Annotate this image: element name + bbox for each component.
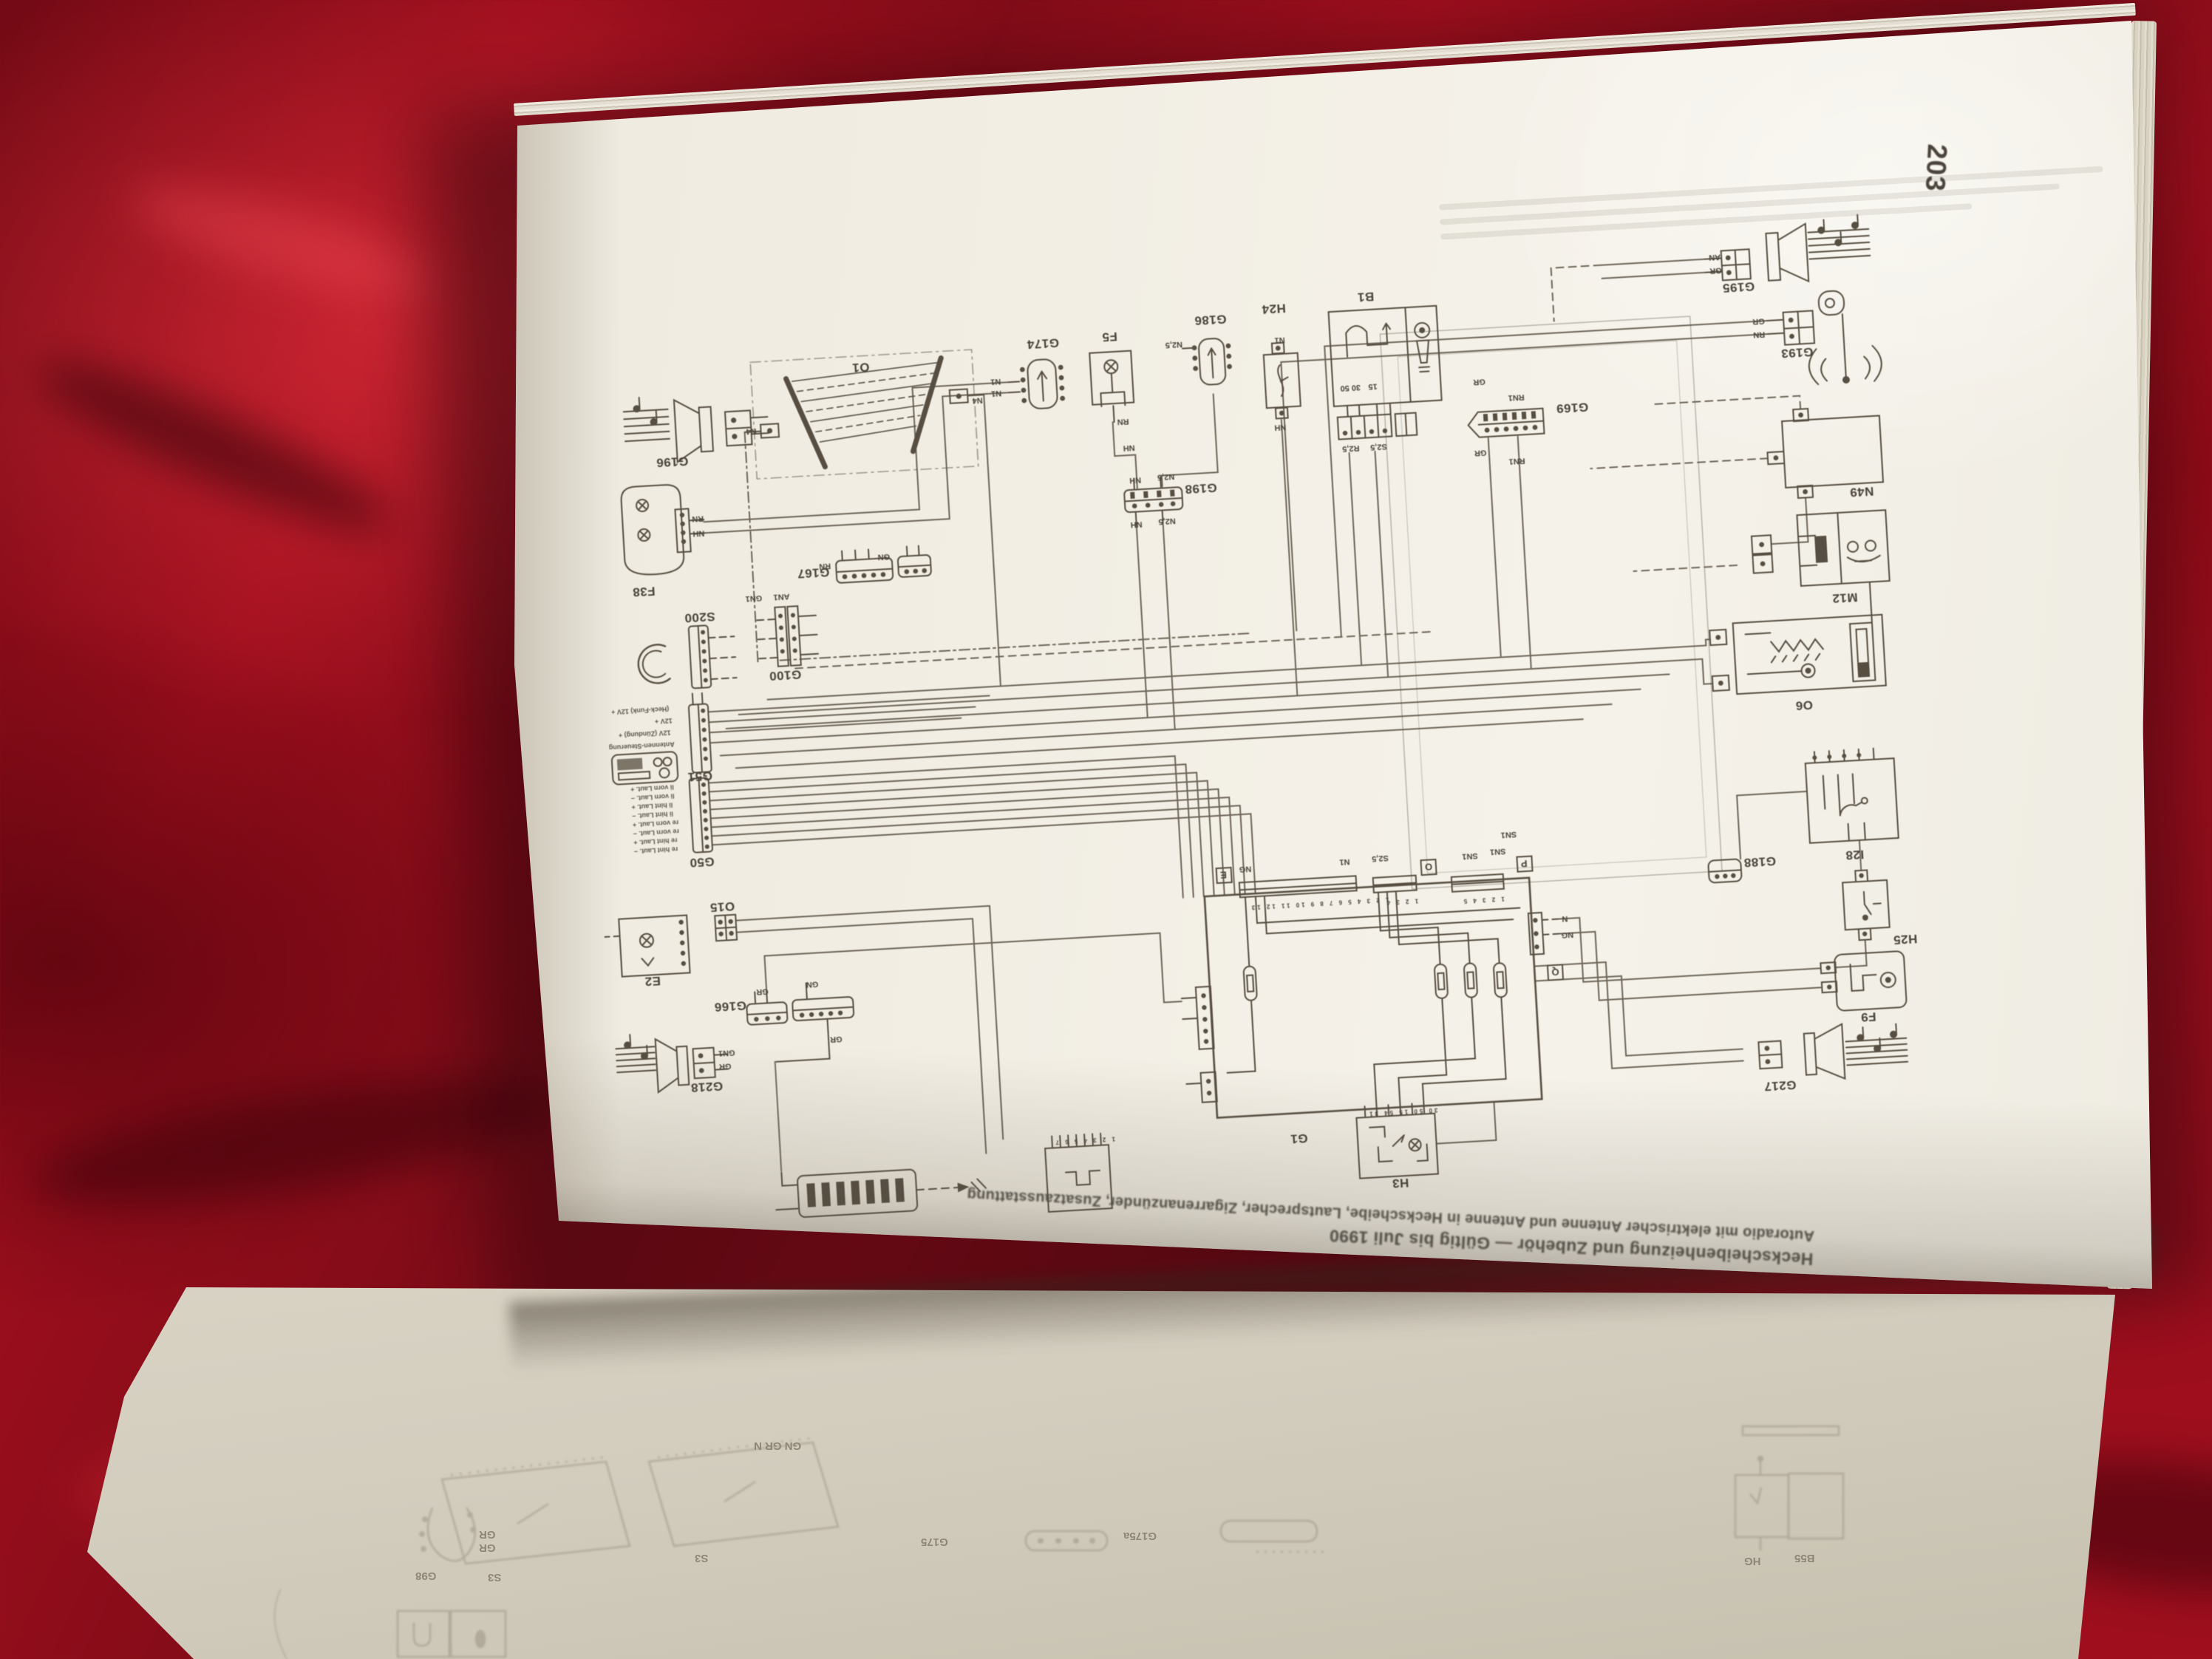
label-ng: NG: [1561, 930, 1573, 938]
label-m12: M12: [1831, 591, 1857, 605]
label-rn1: RN1: [1508, 456, 1525, 465]
label-g174: G174: [1027, 336, 1060, 350]
label-n2-5: N2,5: [1157, 472, 1175, 481]
label-nh: NH: [1129, 475, 1141, 484]
label-rn: RN: [1753, 330, 1765, 338]
label-nh: NH: [1130, 519, 1142, 528]
wiring-diagram: G195G193N49M12O6I28G188H25F9G217B1H24G16…: [487, 100, 2212, 1304]
label-gn1: GN1: [745, 593, 762, 602]
label-g217: G217: [1763, 1078, 1797, 1092]
label-e: E: [1220, 870, 1227, 879]
label-o: O: [1425, 862, 1433, 872]
label-f9: F9: [1860, 1010, 1876, 1023]
label-li-hint-laut-: li hint Laut. −: [632, 810, 673, 819]
label-gr: GR: [479, 1542, 496, 1554]
label-g1: G1: [1290, 1132, 1308, 1145]
label-n4: N4: [746, 426, 757, 435]
label-n1: N1: [1339, 857, 1350, 866]
label-sn1: SN1: [1500, 830, 1517, 839]
label-g193: G193: [1780, 345, 1814, 359]
label-s2-5: S2,5: [1370, 442, 1387, 451]
label-g98: G98: [415, 1570, 436, 1582]
label-1-2-3-4-5-6-7-8-9-10-11-12-13: 1 2 3 4 5 6 7 8 9 10 11 12 13: [1249, 896, 1389, 910]
label-1-2-3-4-5: 1 2 3 4 5: [1461, 896, 1505, 904]
label-hg: HG: [1744, 1555, 1761, 1567]
label-o1: O1: [851, 361, 870, 374]
label-12v-z-ndung-: 12V (Zündung) +: [619, 729, 671, 738]
label-g188: G188: [1743, 855, 1777, 869]
label-rn: RN: [1117, 417, 1129, 426]
label-e2: E2: [644, 975, 661, 988]
label-gr: GR: [1474, 448, 1487, 457]
label-n1: N1: [1274, 335, 1285, 344]
label-r2-5: R2,5: [1342, 443, 1360, 452]
label-gn-gr-n: GN GR N: [754, 1440, 801, 1452]
label-gr: GR: [1709, 265, 1722, 274]
label-re-hint-laut-: re hint Laut. +: [633, 837, 678, 845]
label-s2-5: S2,5: [1372, 854, 1389, 862]
label-o15: O15: [709, 900, 735, 914]
label-g198: G198: [1185, 481, 1218, 495]
label-n1: N1: [990, 377, 1001, 386]
label-g196: G196: [656, 454, 689, 469]
label-gn1: GN1: [718, 1048, 735, 1057]
label-30-50: 30 50: [1340, 383, 1361, 392]
label-s200: S200: [684, 610, 715, 624]
label-gr: GR: [1473, 377, 1486, 386]
label-rn: RN: [819, 561, 831, 570]
label-g218: G218: [690, 1080, 724, 1094]
photo-scene: B55HGG98S3S3G175G175aGRGRGN GR N: [0, 0, 2212, 1659]
label-n49: N49: [1849, 485, 1874, 499]
label-h3: H3: [1392, 1176, 1409, 1190]
label-gn: GN: [806, 979, 818, 988]
label-1-2-3-4: 1 2 3 4: [1384, 897, 1418, 905]
label-antennen-steuerung: Antennen-Steuerung: [609, 740, 675, 751]
label-h24: H24: [1262, 302, 1287, 316]
label-re-vorn-laut-: re vorn Laut. +: [633, 819, 679, 828]
label-i28: I28: [1845, 848, 1865, 862]
label-re-hint-laut-: re hint Laut. −: [634, 845, 678, 854]
label-gr: GR: [1752, 316, 1765, 325]
label-n2-5: N2,5: [1158, 517, 1176, 525]
label-q: Q: [1551, 967, 1559, 978]
label-s3: S3: [488, 1571, 501, 1584]
label-re-vorn-laut-: re vorn Laut. −: [633, 828, 679, 837]
label-12v-: 12V +: [655, 717, 673, 724]
page-number: 203: [1919, 143, 1953, 193]
label-gr: GR: [830, 1035, 843, 1043]
label--heck-funk-12v-: (Heck-Funk) 12V +: [611, 705, 670, 715]
label-b55: B55: [1794, 1552, 1815, 1564]
label-g186: G186: [1194, 313, 1227, 327]
label-nh: NH: [692, 528, 704, 537]
diagram-labels: G195G193N49M12O6I28G188H25F9G217B1H24G16…: [487, 100, 2212, 1304]
label-s3: S3: [695, 1552, 708, 1564]
label-li-hint-laut-: li hint Laut. +: [631, 801, 673, 810]
label-h25: H25: [1893, 933, 1918, 947]
label-nh: NH: [1123, 443, 1134, 452]
label-b1: B1: [1357, 290, 1375, 304]
label-30-50-15-54-31: 30 50 15 54 31: [1367, 1106, 1438, 1116]
label-an: AN: [1709, 252, 1721, 261]
label-li-vorn-laut-: li vorn Laut. +: [630, 783, 674, 792]
label-sn1: SN1: [1490, 847, 1506, 856]
label-gr: GR: [479, 1528, 496, 1541]
label-g169: G169: [1556, 401, 1589, 415]
label-rn1: RN1: [1508, 392, 1525, 401]
label-g100: G100: [769, 668, 802, 682]
label-f38: F38: [632, 585, 656, 599]
label-n1: N1: [991, 389, 1002, 398]
label-rn: RN: [692, 514, 704, 522]
label-g50: G50: [690, 855, 715, 869]
label-an1: AN1: [773, 592, 790, 601]
label-gr: GR: [756, 987, 769, 995]
label-sn1: SN1: [1462, 851, 1478, 860]
label-n: N: [1562, 914, 1568, 922]
label-1-2-3-4-5-6-7: 1 2 3 4 5 6 7: [1053, 1136, 1115, 1145]
label-p: P: [1521, 859, 1528, 868]
label-nh: NH: [1274, 423, 1286, 432]
label-ng: NG: [1239, 864, 1251, 873]
label-g175a: G175a: [1123, 1530, 1157, 1542]
label-g175: G175: [921, 1536, 948, 1548]
label-15: 15: [1368, 382, 1378, 391]
label-g51: G51: [687, 769, 713, 783]
label-gr: GR: [719, 1061, 732, 1070]
label-f5: F5: [1101, 330, 1117, 344]
label-li-vorn-laut-: li vorn Laut. −: [631, 792, 675, 801]
label-n2-5: N2,5: [1165, 340, 1182, 349]
label-gn: GN: [877, 552, 890, 561]
label-g195: G195: [1722, 280, 1755, 294]
label-o6: O6: [1795, 698, 1814, 712]
label-n4: N4: [972, 395, 983, 404]
label-g166: G166: [714, 999, 747, 1013]
